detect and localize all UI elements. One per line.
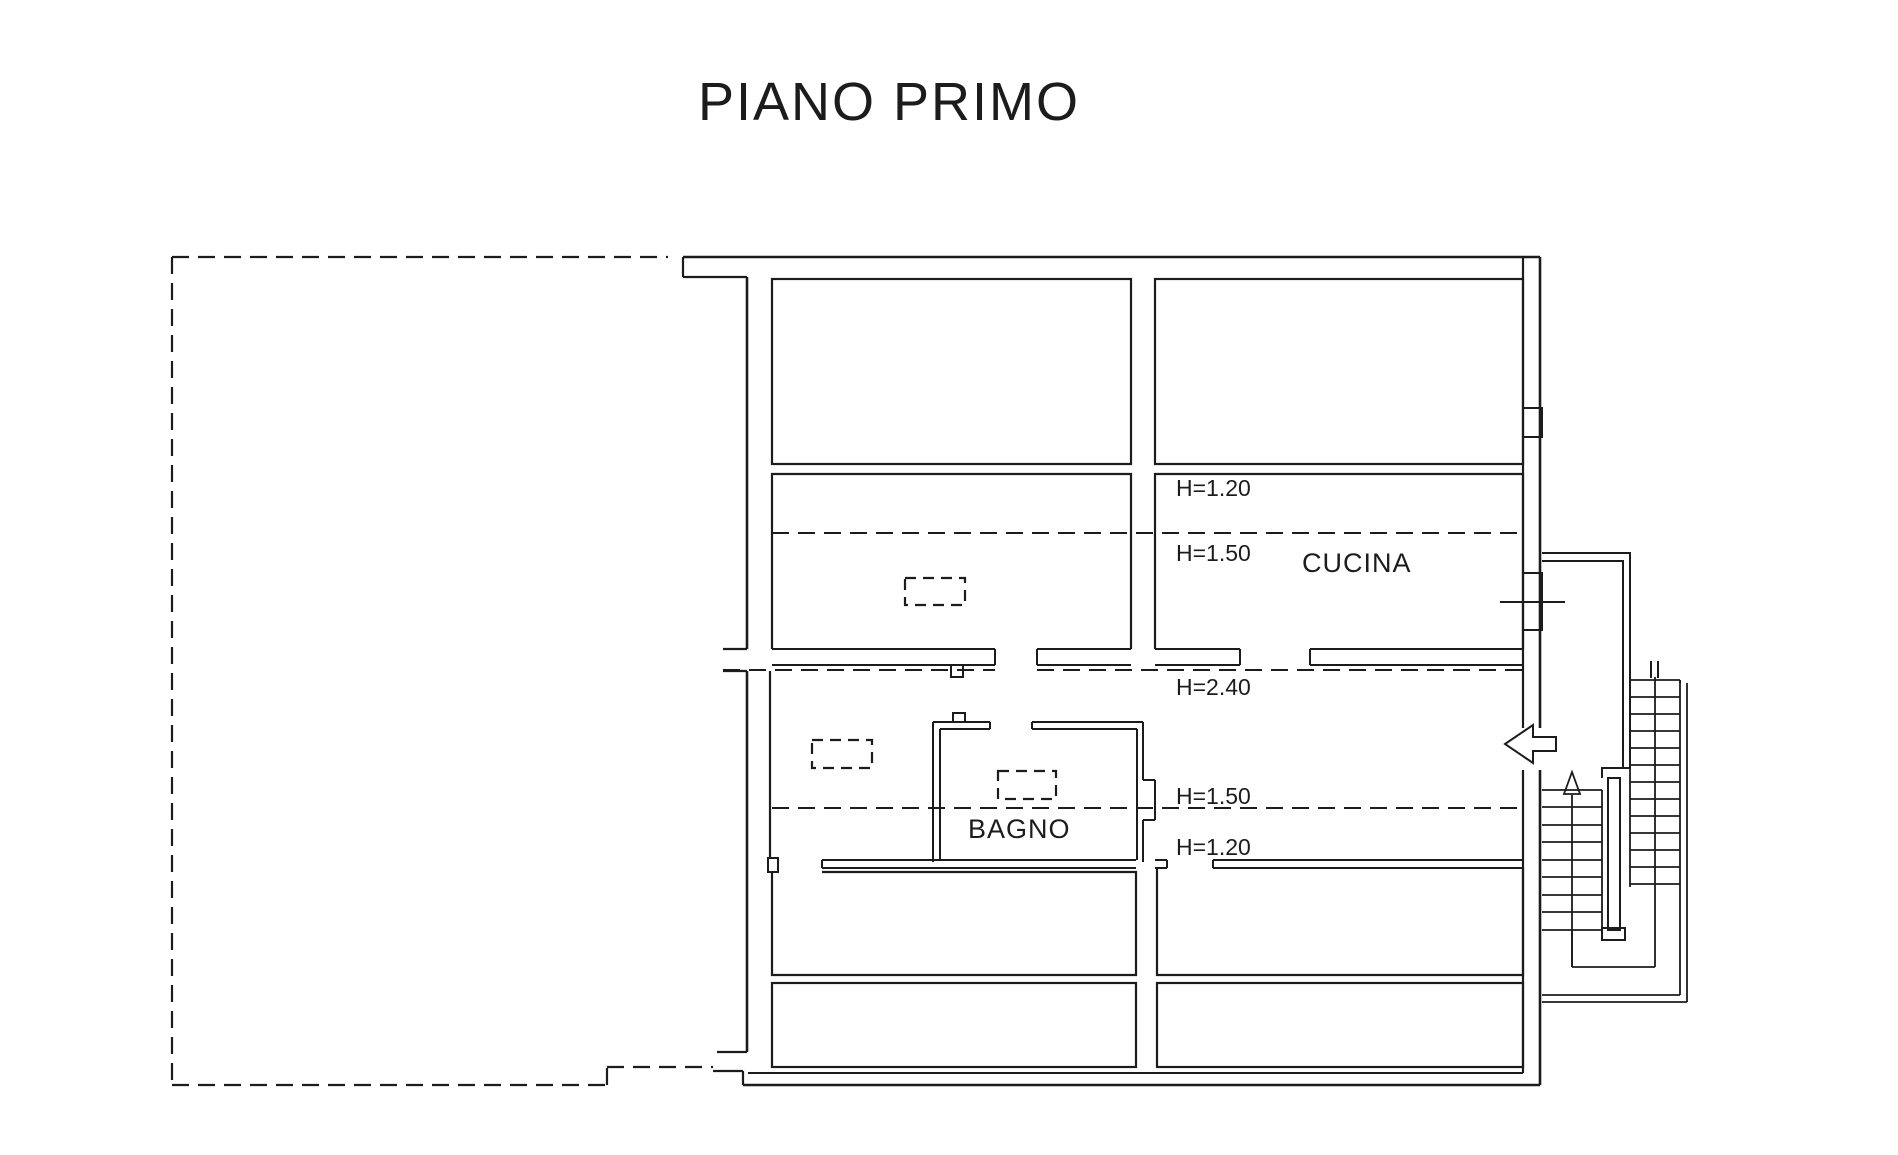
stair-outer-boundary [1542, 680, 1687, 1002]
bath-top-wall-right [1032, 722, 1143, 729]
corridor-wall-right-b [1310, 649, 1523, 665]
skylight-bathroom [998, 771, 1056, 799]
outer-wall-bottomleft-step [713, 1052, 747, 1085]
lower-wall-right-a [1155, 860, 1167, 868]
skylight-lower-left [812, 740, 872, 768]
annotation-lower-h150: H=1.50 [1176, 783, 1251, 809]
bath-top-wall-left [933, 722, 990, 729]
annotation-lower-h120: H=1.20 [1176, 834, 1251, 860]
terrace-dashed-outline [172, 257, 713, 1085]
corridor-wall-right-a [1155, 649, 1240, 665]
terrace-bottom-step [607, 1067, 713, 1085]
stair-start-ticks [1651, 661, 1658, 678]
room-mid-left [772, 474, 1131, 649]
room-bottom-right [1157, 983, 1523, 1067]
left-door-jambs [723, 649, 747, 671]
floor-plan-drawing: PIANO PRIMO H=1.20 H=1.50 CUCINA H=2.40 … [0, 0, 1898, 1155]
interior-walls [768, 649, 1523, 872]
room-top-right [1155, 279, 1523, 464]
skylight-upper [905, 578, 965, 605]
bath-chimney-notch [953, 713, 965, 722]
stair-divider [1608, 778, 1620, 930]
window-markers [1500, 408, 1565, 630]
page-title: PIANO PRIMO [698, 72, 1080, 132]
floor-plan-page: PIANO PRIMO H=1.20 H=1.50 CUCINA H=2.40 … [0, 0, 1898, 1155]
staircase [1542, 553, 1687, 1002]
kitchen-label: CUCINA [1302, 548, 1412, 578]
lower-wall-left [822, 860, 1136, 868]
outer-wall-topleft-join [683, 257, 747, 277]
room-lower-right [1157, 868, 1523, 975]
room-bottom-left [772, 983, 1136, 1067]
corridor-wall-left-a [772, 649, 995, 665]
lower-wall-right-b [1213, 860, 1523, 868]
room-boxes [772, 279, 1523, 1067]
annotation-corridor-h240: H=2.40 [1176, 674, 1251, 700]
annotation-upper-h120: H=1.20 [1176, 475, 1251, 501]
lower-wall-left-notch [768, 858, 778, 872]
annotation-upper-h150: H=1.50 [1176, 540, 1251, 566]
room-lower-middle [772, 872, 1136, 975]
bathroom-label: BAGNO [968, 814, 1071, 844]
bath-right-wall [1137, 722, 1155, 862]
bath-left-wall [933, 722, 940, 862]
corridor-wall-left-b [1037, 649, 1131, 665]
room-top-middle [772, 279, 1131, 464]
entrance-arrow-icon [1505, 725, 1556, 763]
